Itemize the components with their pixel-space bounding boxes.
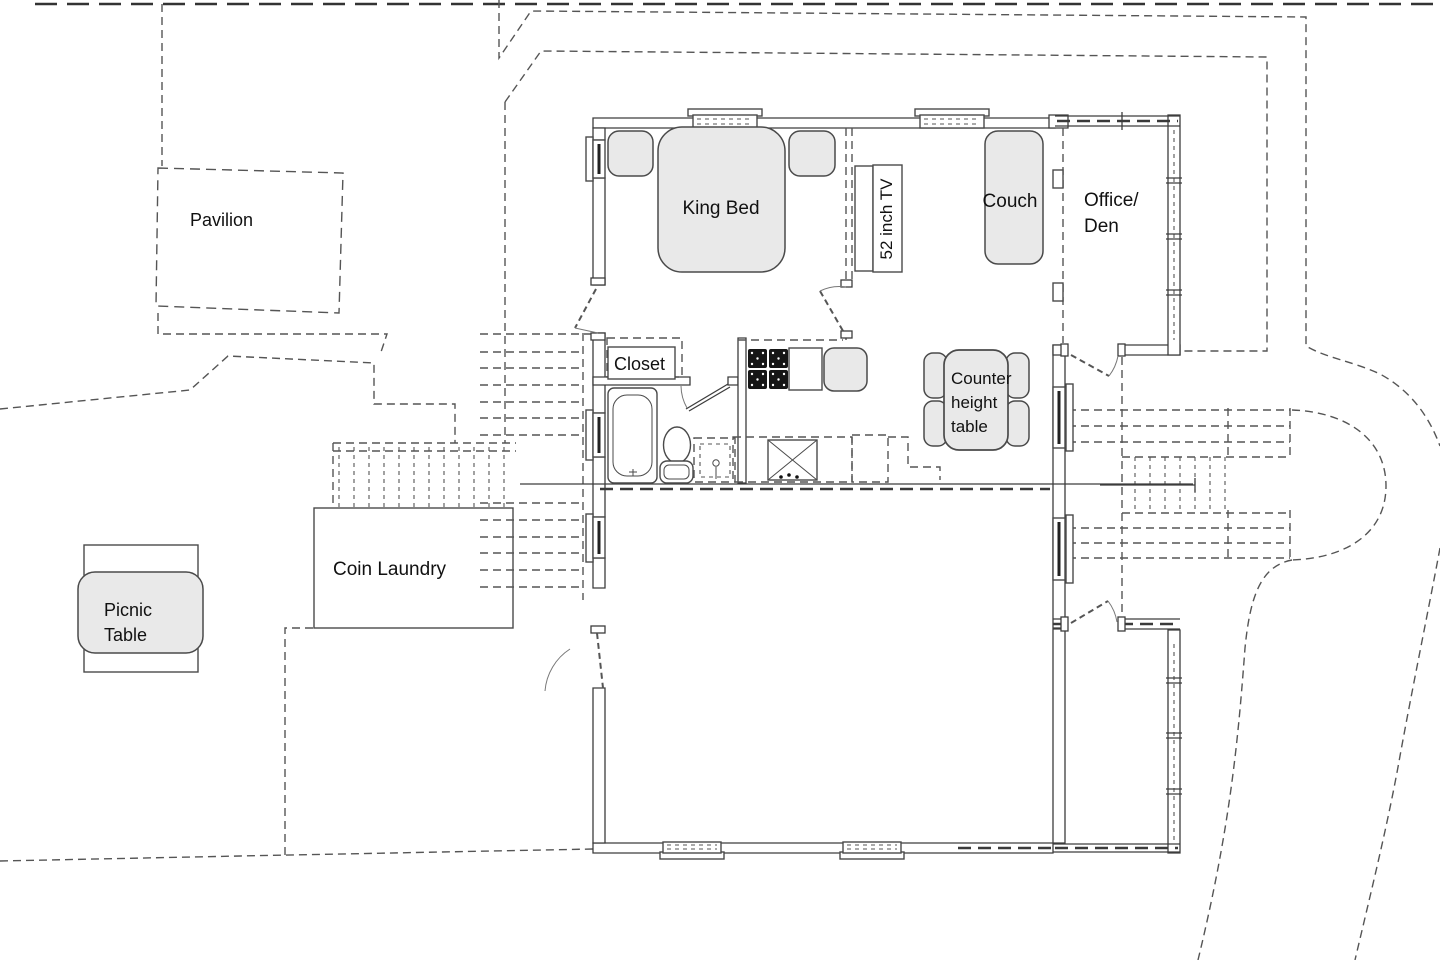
door-leaf [686,384,730,411]
bathtub-outer [608,388,657,483]
counter-table-label-line1: Counter [951,369,1012,388]
office-divider-post-1 [1053,170,1063,188]
door-cap [591,626,605,633]
window-right-lower [1053,515,1073,583]
deck-rows-upper [480,352,583,435]
door-cap [1118,617,1125,631]
vanity-inner [700,444,730,477]
kitchen-island [733,435,940,482]
door-leaf [1071,601,1108,623]
door-swing-arc [1108,601,1117,622]
bathtub [608,388,657,483]
door-swing-arc [681,386,687,408]
floor-plan-page: Pavilion Picnic Table Coin Laundry [0,0,1440,960]
office-den: Office/ Den [1084,190,1139,237]
door-swing-arc [575,328,598,333]
lower-path-line [0,356,455,443]
window-left-lower [586,514,605,562]
counter-table-label-line3: table [951,417,988,436]
upper-path-line [158,313,387,355]
door-swing-arc [1109,356,1118,376]
tv: 52 inch TV [855,165,902,272]
window-bottom-1 [660,842,724,859]
nightstand-right [789,131,835,176]
tv-screen [855,166,873,271]
window-bottom-2 [840,842,904,859]
door-cap [591,333,605,340]
door-cap [841,280,852,287]
living-area: Couch Counter height table [924,131,1043,450]
door-cap [841,331,852,338]
driveway-curve-right [1355,548,1440,960]
south-boundary-line [0,849,593,861]
king-bed-label: King Bed [682,198,759,219]
door-leaf [575,289,596,328]
door-leaf [820,291,843,331]
entry-stair-rail [1100,478,1195,492]
floor-plan-drawing: Pavilion Picnic Table Coin Laundry [0,0,1440,960]
toilet-bowl [664,427,691,463]
door-cap [1061,617,1068,631]
tv-label: 52 inch TV [877,178,896,260]
kitchen-sink [768,440,817,480]
bathroom [608,388,735,483]
door-swing-arc [545,649,570,691]
walkway-rows-upper [1068,410,1290,457]
sink-drain [713,460,719,466]
driveway-loop [1292,410,1386,560]
coin-laundry-label: Coin Laundry [333,559,447,580]
door-cap [591,278,605,285]
door-leaf [1071,355,1109,376]
bedroom-interior-door [820,280,852,338]
picnic-table-label-line2: Table [104,625,147,645]
door-cap [1061,344,1068,356]
closet-label: Closet [614,354,665,374]
bath-kitchen-wall [738,338,746,483]
couch-label: Couch [983,191,1038,212]
pavilion: Pavilion [156,168,343,313]
bedroom-exterior-door [575,278,605,340]
table-chair [1006,401,1029,446]
window-body [920,115,984,128]
picnic-table: Picnic Table [78,545,203,672]
burner-dots [752,353,784,385]
stove [748,349,788,389]
window-sill [1066,384,1073,451]
kitchen-armchair [824,348,867,391]
nightstand-left [608,131,653,176]
door-cap [1118,344,1125,356]
window-body [663,842,721,853]
left-wall [593,128,605,843]
stair-treads [339,447,504,507]
office-divider-post-2 [1053,283,1063,301]
window-right-upper [1053,384,1073,451]
window-sill [586,514,593,562]
kitchen-counter [789,348,822,390]
walkway-corners [1228,408,1290,562]
door-leaf [597,633,603,688]
office-den-label-line1: Office/ [1084,190,1139,211]
porch-door [1061,601,1125,631]
entry-door [1061,344,1125,376]
driveway-curve-left [1198,560,1292,960]
window-left-bath [586,410,605,460]
coin-laundry: Coin Laundry [314,508,513,628]
window-sill [586,137,593,181]
picnic-table-label-line1: Picnic [104,600,152,620]
pavilion-outline [156,168,343,313]
right-entry-deck-and-stairs [1068,357,1290,628]
window-top-2 [915,109,989,128]
closet: Closet [607,338,682,379]
window-top-1 [688,109,762,128]
island-cabinet [852,435,888,482]
window-sill [586,410,593,460]
lower-exterior-door [545,626,605,691]
window-sill [1066,515,1073,583]
counter-table-label-line2: height [951,393,998,412]
walkway-rows-lower [1068,513,1290,558]
bathroom-door [681,384,730,411]
top-wall [593,118,1055,128]
pavilion-label: Pavilion [190,210,253,230]
toilet-tank [660,461,693,483]
counter-height-table: Counter height table [924,350,1029,450]
window-body [693,115,757,128]
bathroom-sink [694,438,735,482]
door-opening [1068,344,1118,356]
bedroom: King Bed 52 inch TV [608,127,902,272]
toilet [660,427,693,483]
window-body [843,842,901,853]
kitchen [733,348,940,482]
window-left-bedroom [586,137,605,181]
laundry-yard-line [285,628,313,856]
bedroom-partition [846,128,852,340]
office-den-label-line2: Den [1084,216,1119,237]
